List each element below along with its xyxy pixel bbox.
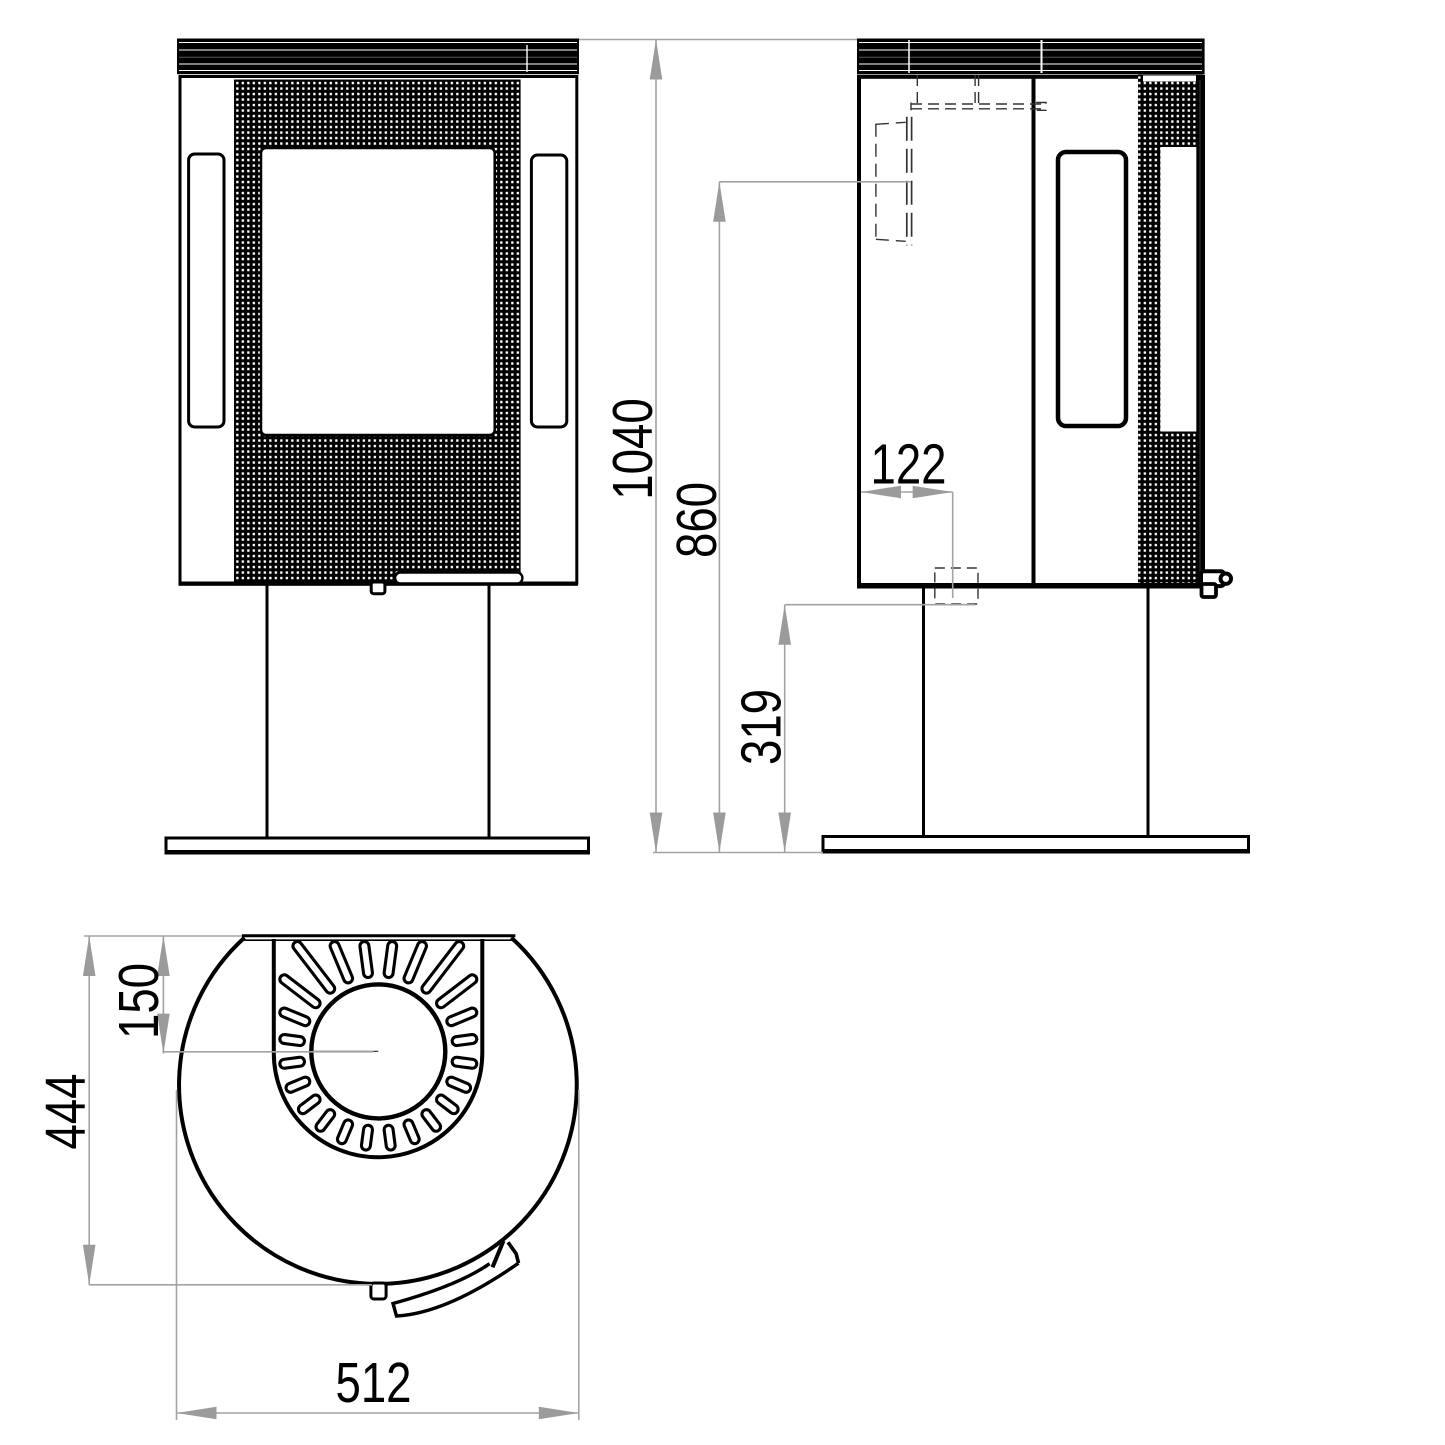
svg-text:1040: 1040 [600,398,664,499]
svg-text:122: 122 [870,432,946,496]
svg-text:512: 512 [335,1350,411,1414]
svg-text:860: 860 [664,482,728,558]
svg-text:150: 150 [106,963,170,1039]
svg-text:319: 319 [729,689,793,765]
svg-text:444: 444 [33,1073,97,1149]
